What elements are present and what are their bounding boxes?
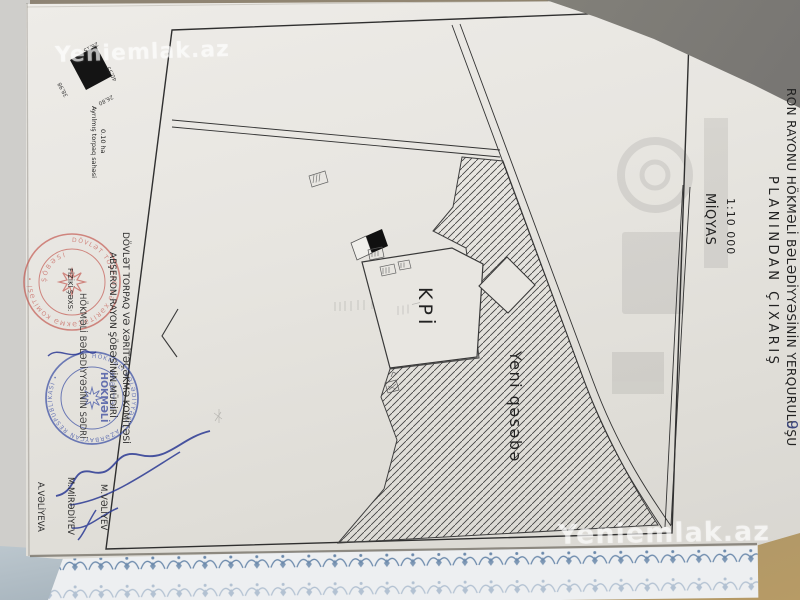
photographed-land-plan-document: 26,15 40,55 26,80 38,98 DÖVLƏT TORPAQ VƏ… [0,0,800,600]
document-paper [0,0,800,600]
underlying-paper-left [0,0,30,560]
watermark-bottom: Yeniemlak.az [558,516,770,551]
